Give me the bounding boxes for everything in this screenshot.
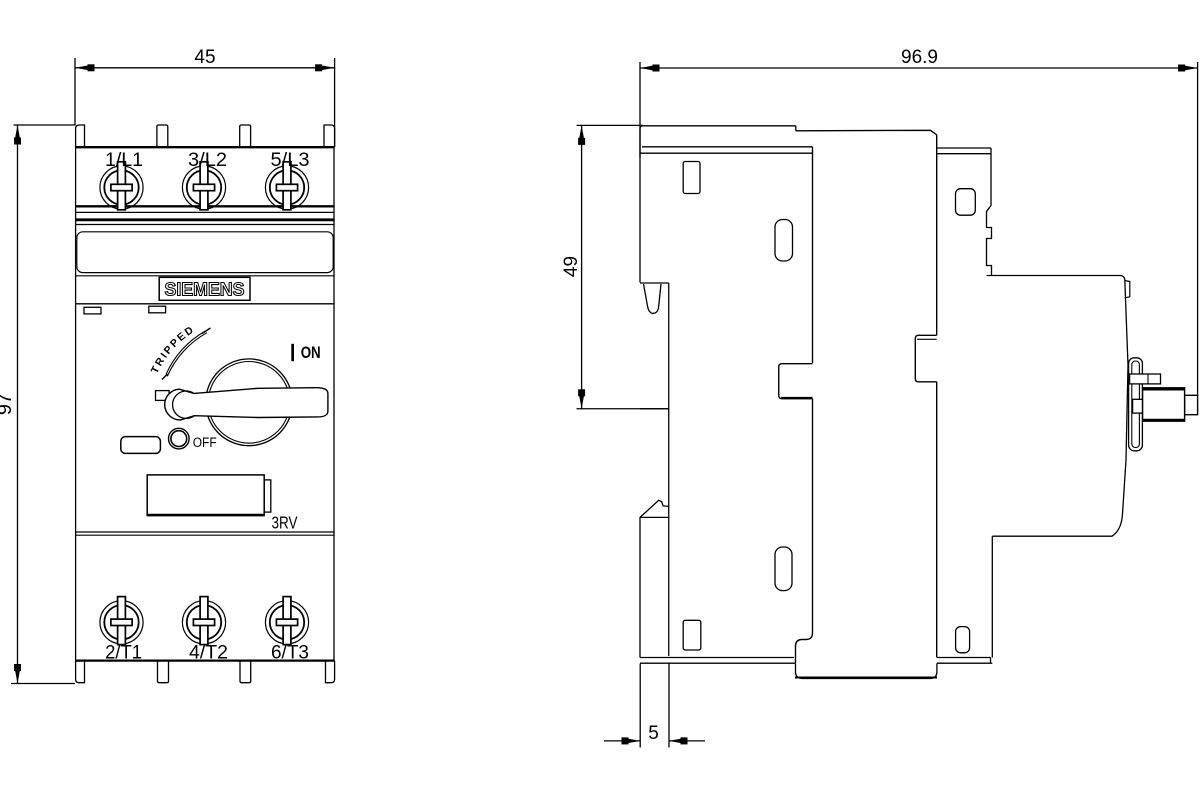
svg-text:5/L3: 5/L3 xyxy=(271,150,310,171)
svg-text:2/T1: 2/T1 xyxy=(105,642,142,663)
svg-text:49: 49 xyxy=(561,256,582,277)
svg-text:96.9: 96.9 xyxy=(901,47,938,68)
svg-text:3RV: 3RV xyxy=(272,513,298,533)
svg-text:SIEMENS: SIEMENS xyxy=(165,280,245,300)
svg-text:1/L1: 1/L1 xyxy=(105,150,143,171)
svg-text:6/T3: 6/T3 xyxy=(271,642,309,663)
svg-text:45: 45 xyxy=(194,47,215,68)
svg-text:OFF: OFF xyxy=(193,435,217,450)
svg-text:4/T2: 4/T2 xyxy=(189,642,228,663)
svg-text:ON: ON xyxy=(301,344,321,362)
svg-text:97: 97 xyxy=(0,393,16,415)
svg-text:3/L2: 3/L2 xyxy=(188,150,227,171)
svg-text:5: 5 xyxy=(648,723,659,744)
